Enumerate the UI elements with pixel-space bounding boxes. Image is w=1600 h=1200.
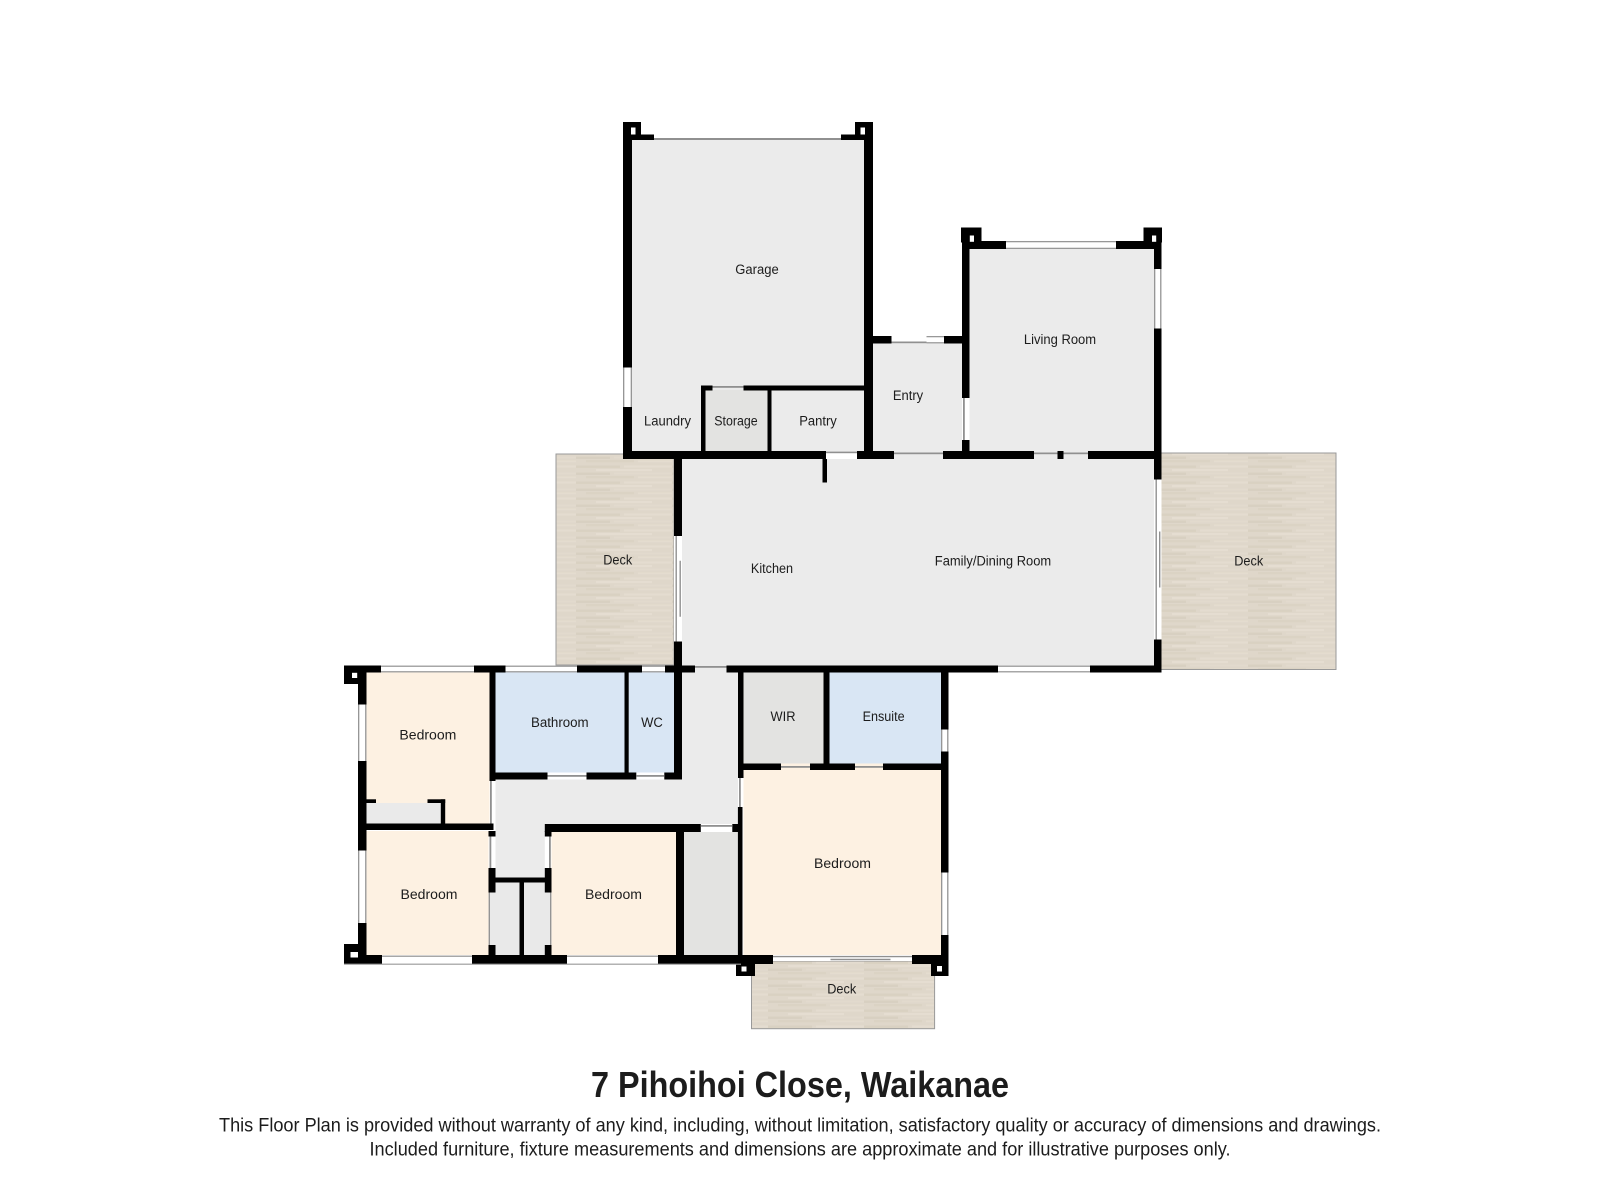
svg-text:Deck: Deck xyxy=(603,553,633,569)
svg-text:Family/Dining Room: Family/Dining Room xyxy=(935,554,1051,570)
svg-text:Ensuite: Ensuite xyxy=(863,709,905,725)
svg-text:Entry: Entry xyxy=(893,388,924,404)
svg-text:Living Room: Living Room xyxy=(1024,332,1096,348)
svg-text:Kitchen: Kitchen xyxy=(751,561,793,577)
svg-text:Bathroom: Bathroom xyxy=(531,715,589,731)
svg-text:Bedroom: Bedroom xyxy=(401,887,458,903)
svg-text:Bedroom: Bedroom xyxy=(585,887,642,903)
svg-text:Deck: Deck xyxy=(827,982,857,998)
svg-text:Bedroom: Bedroom xyxy=(399,728,456,744)
svg-text:Bedroom: Bedroom xyxy=(814,856,871,872)
svg-text:7 Pihoihoi Close, Waikanae: 7 Pihoihoi Close, Waikanae xyxy=(591,1064,1009,1105)
svg-text:Included furniture, fixture me: Included furniture, fixture measurements… xyxy=(370,1140,1231,1161)
svg-text:Garage: Garage xyxy=(735,262,778,278)
svg-text:Deck: Deck xyxy=(1234,554,1264,570)
svg-text:WIR: WIR xyxy=(771,709,796,725)
svg-text:Storage: Storage xyxy=(714,414,757,430)
svg-text:WC: WC xyxy=(641,715,663,731)
svg-text:Pantry: Pantry xyxy=(799,414,837,430)
svg-text:Laundry: Laundry xyxy=(644,414,692,430)
svg-text:This Floor Plan is provided wi: This Floor Plan is provided without warr… xyxy=(219,1116,1381,1137)
